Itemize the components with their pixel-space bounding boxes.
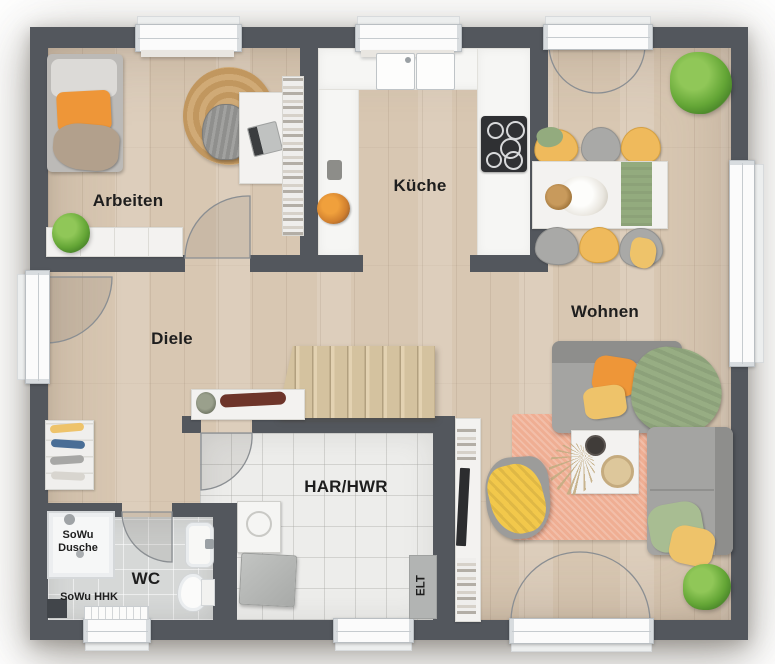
room-label-arbeiten: Arbeiten (68, 191, 188, 211)
kitchen-vase (327, 160, 342, 180)
lowboard-books-bottom (457, 558, 476, 614)
wall-kueche-bottom-left (300, 255, 363, 272)
window-arbeiten (135, 24, 242, 52)
cooktop-burner (504, 151, 523, 170)
room-label-har-hwr: HAR/HWR (276, 477, 416, 497)
kitchen-sink-right (416, 53, 455, 90)
label-sowu-hhk: SoWu HHK (39, 591, 139, 604)
label-sowu-dusche-line1: SoWu (63, 529, 94, 541)
room-label-diele: Diele (122, 329, 222, 349)
french-door-top (543, 24, 653, 50)
cooktop-burner (487, 122, 504, 139)
wc-radiator (84, 606, 149, 620)
window-wohnen-right (729, 160, 755, 367)
cooktop-burner (486, 152, 502, 168)
label-sowu-dusche: SoWu Dusche (43, 529, 113, 555)
window-wc (83, 618, 151, 643)
window-kueche (355, 24, 462, 52)
shoes-white (51, 471, 85, 481)
window-innersill (141, 50, 234, 57)
wall-wc-har (213, 503, 237, 620)
wall-arbeiten-bottom-left (30, 255, 185, 272)
decor-bowl (545, 184, 572, 210)
window-har (333, 618, 414, 643)
sofa-pillow-yellow (582, 383, 628, 421)
lowboard-books-top (457, 428, 476, 460)
potted-plant-arbeiten (52, 213, 90, 253)
label-sowu-dusche-line2: Dusche (58, 542, 98, 554)
sofa-cushion-seam (650, 489, 714, 491)
shower-head (64, 514, 75, 525)
room-label-wc: WC (106, 569, 186, 589)
kitchen-faucet (405, 57, 411, 63)
console-decor-plant (196, 392, 216, 414)
washing-machine-door (246, 511, 272, 537)
toilet-cistern (201, 579, 215, 606)
sofa-right-backrest (715, 427, 733, 555)
room-label-kueche: Küche (370, 176, 470, 196)
label-elt: ELT (416, 560, 429, 612)
table-tray (601, 455, 634, 488)
room-label-wohnen: Wohnen (555, 302, 655, 322)
entry-door (25, 270, 50, 384)
wc-sink-faucet (205, 539, 214, 549)
wall-kueche-bottom-right (470, 255, 548, 272)
fruit-bowl (317, 193, 350, 224)
palm-plant-top (670, 52, 732, 114)
table-runner (621, 162, 652, 226)
french-door-bottom (509, 618, 654, 644)
bookshelf (282, 76, 304, 236)
wall-wc-top-right (172, 503, 237, 517)
floorplan-canvas: Arbeiten Küche Wohnen Diele HAR/HWR WC S… (0, 0, 775, 664)
table-vase (587, 437, 604, 454)
dining-chair (581, 127, 621, 165)
utility-unit (239, 553, 298, 608)
